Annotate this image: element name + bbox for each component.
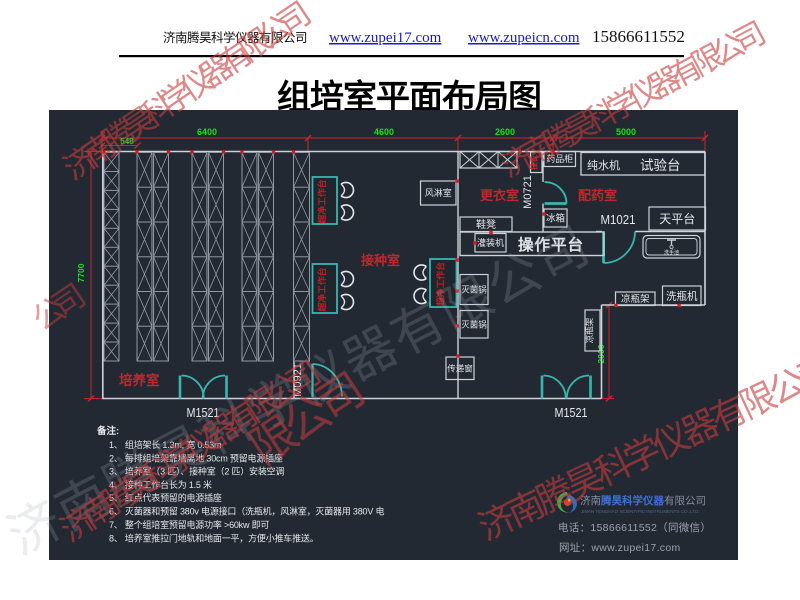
svg-text:超净工作台: 超净工作台 <box>316 179 327 224</box>
svg-text:7、 整个组培室预留电源功率 >60kw 即可: 7、 整个组培室预留电源功率 >60kw 即可 <box>109 519 269 530</box>
svg-text:凉瓶架: 凉瓶架 <box>585 317 595 343</box>
svg-text:15866611552: 15866611552 <box>592 27 685 46</box>
svg-text:配药室: 配药室 <box>578 188 617 203</box>
svg-text:鞋凳: 鞋凳 <box>476 218 496 231</box>
svg-text:M0721: M0721 <box>522 175 534 209</box>
svg-text:备注:: 备注: <box>96 425 119 437</box>
svg-text:纯水机: 纯水机 <box>587 158 620 172</box>
svg-text:更衣室: 更衣室 <box>480 188 519 203</box>
svg-text:www.zupeicn.com: www.zupeicn.com <box>468 30 580 46</box>
svg-text:5000: 5000 <box>616 127 636 137</box>
svg-text:超净工作台: 超净工作台 <box>316 267 327 312</box>
svg-text:洗手池: 洗手池 <box>664 249 679 256</box>
svg-text:电话：15866611552（同微信）: 电话：15866611552（同微信） <box>558 521 711 534</box>
svg-text:7700: 7700 <box>76 263 86 282</box>
svg-text:天平台: 天平台 <box>659 211 695 226</box>
svg-text:试验台: 试验台 <box>640 158 681 173</box>
svg-text:M1021: M1021 <box>601 212 636 227</box>
svg-text:培养室: 培养室 <box>119 372 160 388</box>
svg-text:6、 灭菌器和预留 380v 电源接口（洗瓶机，风淋室，灭菌: 6、 灭菌器和预留 380v 电源接口（洗瓶机，风淋室，灭菌器用 380V 电 <box>109 506 384 517</box>
svg-text:网址：www.zupei17.com: 网址：www.zupei17.com <box>559 541 681 554</box>
svg-text:传递窗: 传递窗 <box>447 363 473 373</box>
svg-text:2600: 2600 <box>495 127 515 137</box>
svg-text:凉瓶架: 凉瓶架 <box>621 293 650 305</box>
svg-text:www.zupei17.com: www.zupei17.com <box>329 30 442 46</box>
svg-text:6400: 6400 <box>197 127 217 137</box>
svg-text:接种室: 接种室 <box>361 253 400 268</box>
svg-text:4600: 4600 <box>374 127 394 137</box>
svg-text:M1521: M1521 <box>555 405 588 420</box>
svg-text:JINAN TENGHAO SCIENTIFIC INSTR: JINAN TENGHAO SCIENTIFIC INSTRUMENTS CO.… <box>581 509 700 514</box>
svg-text:灌装机: 灌装机 <box>477 237 504 248</box>
svg-text:风淋室: 风淋室 <box>425 187 452 198</box>
svg-text:8、 培养室推拉门地轨和地面一平，方便小推车推送。: 8、 培养室推拉门地轨和地面一平，方便小推车推送。 <box>109 533 319 544</box>
svg-text:洗瓶机: 洗瓶机 <box>666 290 698 303</box>
